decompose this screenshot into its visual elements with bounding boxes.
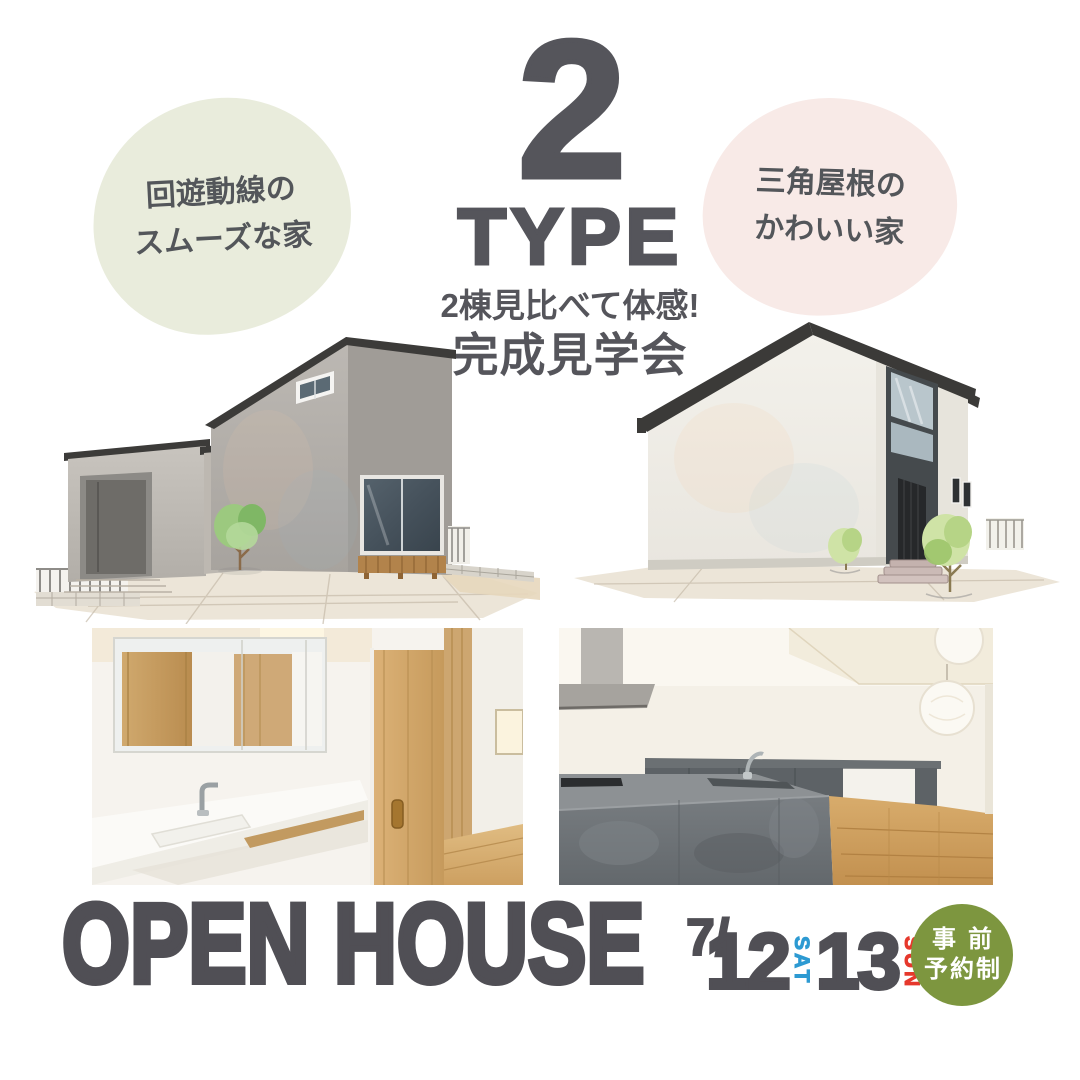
cooktop xyxy=(561,778,623,787)
living-window xyxy=(360,475,444,555)
headline-type-word: TYPE xyxy=(440,197,700,277)
mirror-cabinet xyxy=(114,638,326,752)
reservation-badge: 事前 予約制 xyxy=(911,904,1013,1006)
day-number: 13 xyxy=(816,930,899,994)
flat-roof-house-illustration xyxy=(28,330,546,624)
right-fence xyxy=(446,526,534,582)
weekday-sat: SAT xyxy=(791,936,812,985)
reservation-line: 事前 xyxy=(911,925,1013,955)
open-house-title: OPEN HOUSE xyxy=(62,900,645,987)
entrance-wing xyxy=(64,439,210,592)
date-day-12: 12SAT xyxy=(706,930,812,994)
day-number: 12 xyxy=(706,930,789,994)
sliding-door xyxy=(370,648,444,885)
front-door xyxy=(898,478,926,561)
entrance-door xyxy=(86,480,146,574)
headline-number: 2 xyxy=(440,28,700,193)
label-blob-smooth-flow-house: 回遊動線の スムーズな家 xyxy=(87,91,357,340)
reservation-line: 予約制 xyxy=(911,955,1013,985)
ground xyxy=(574,564,1060,602)
label-line: かわいい家 xyxy=(701,203,956,259)
label-blob-triangle-roof-house: 三角屋根の かわいい家 xyxy=(699,94,960,321)
door-handle xyxy=(392,800,403,828)
right-wall-edge xyxy=(985,684,993,814)
gable-roof-house-illustration xyxy=(554,308,1080,622)
kitchen-interior-photo xyxy=(559,628,993,885)
date-day-13: 13SUN xyxy=(816,930,922,994)
garden-fence xyxy=(986,518,1024,550)
hallway xyxy=(444,628,523,885)
washroom-interior-photo xyxy=(92,628,523,885)
hall-window xyxy=(496,710,523,754)
